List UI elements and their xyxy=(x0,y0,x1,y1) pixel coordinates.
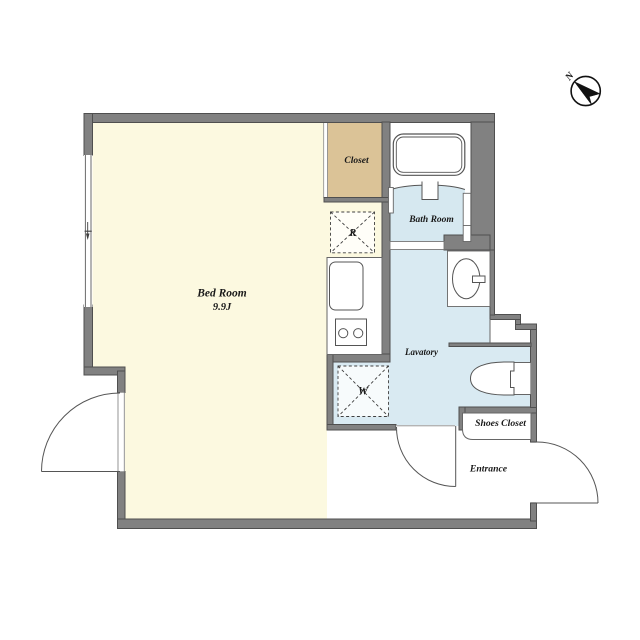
svg-text:Lavatory: Lavatory xyxy=(404,347,439,357)
svg-text:9.9J: 9.9J xyxy=(213,302,232,313)
svg-text:Closet: Closet xyxy=(344,156,369,166)
svg-text:Bath Room: Bath Room xyxy=(408,215,454,225)
svg-text:Entrance: Entrance xyxy=(469,464,508,475)
svg-text:W: W xyxy=(358,386,369,398)
svg-text:R: R xyxy=(348,228,356,239)
svg-text:Bed Room: Bed Room xyxy=(196,288,247,300)
svg-text:Shoes Closet: Shoes Closet xyxy=(475,418,526,429)
